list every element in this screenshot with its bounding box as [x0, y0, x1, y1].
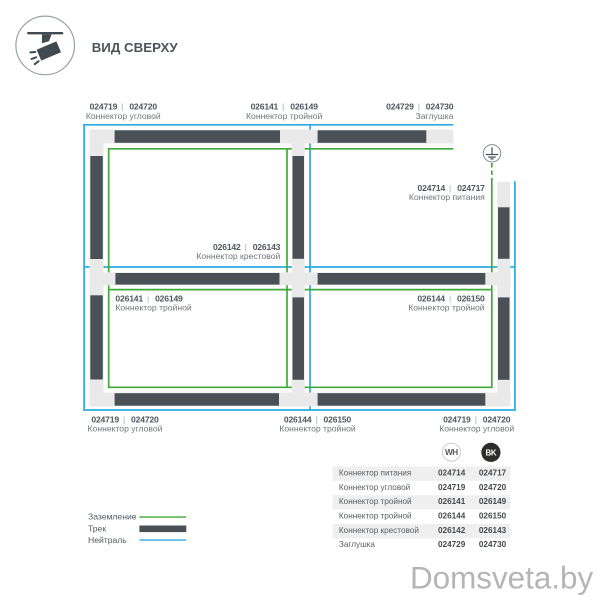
svg-text:WH: WH — [445, 448, 458, 457]
svg-text:Коннектор угловой: Коннектор угловой — [439, 424, 514, 434]
svg-text:026143: 026143 — [479, 526, 507, 535]
svg-text:Заглушка: Заглушка — [416, 111, 454, 121]
svg-text:Нейтраль: Нейтраль — [88, 535, 127, 545]
svg-text:BK: BK — [486, 448, 497, 457]
svg-text:Коннектор угловой: Коннектор угловой — [339, 483, 410, 492]
svg-text:026142: 026142 — [438, 526, 466, 535]
svg-text:026150: 026150 — [479, 511, 507, 520]
svg-text:024717: 024717 — [479, 468, 507, 477]
svg-text:Domsveta.by: Domsveta.by — [410, 560, 593, 595]
svg-text:Коннектор угловой: Коннектор угловой — [88, 424, 163, 434]
svg-text:Коннектор крестовой: Коннектор крестовой — [339, 526, 419, 535]
svg-text:026141: 026141 — [438, 497, 466, 506]
svg-text:Коннектор крестовой: Коннектор крестовой — [196, 251, 280, 261]
svg-text:024714: 024714 — [438, 468, 466, 477]
svg-text:Коннектор питания: Коннектор питания — [339, 468, 411, 477]
svg-text:Коннектор тройной: Коннектор тройной — [339, 511, 412, 520]
svg-text:Трек: Трек — [88, 523, 106, 533]
svg-text:024720: 024720 — [479, 483, 507, 492]
svg-text:026149: 026149 — [479, 497, 507, 506]
svg-text:Коннектор тройной: Коннектор тройной — [339, 497, 412, 506]
svg-text:Коннектор тройной: Коннектор тройной — [279, 424, 356, 434]
svg-text:024729: 024729 — [438, 540, 466, 549]
svg-text:ВИД СВЕРХУ: ВИД СВЕРХУ — [92, 40, 179, 55]
svg-text:Коннектор тройной: Коннектор тройной — [115, 303, 192, 313]
svg-text:Заземление: Заземление — [88, 512, 137, 522]
svg-text:Коннектор угловой: Коннектор угловой — [86, 111, 161, 121]
svg-text:Коннектор тройной: Коннектор тройной — [246, 111, 323, 121]
svg-text:Коннектор тройной: Коннектор тройной — [408, 303, 485, 313]
svg-text:024719: 024719 — [438, 483, 466, 492]
svg-text:024730: 024730 — [479, 540, 507, 549]
svg-text:Коннектор питания: Коннектор питания — [409, 192, 485, 202]
svg-text:026144: 026144 — [438, 511, 466, 520]
svg-text:Заглушка: Заглушка — [339, 540, 376, 549]
